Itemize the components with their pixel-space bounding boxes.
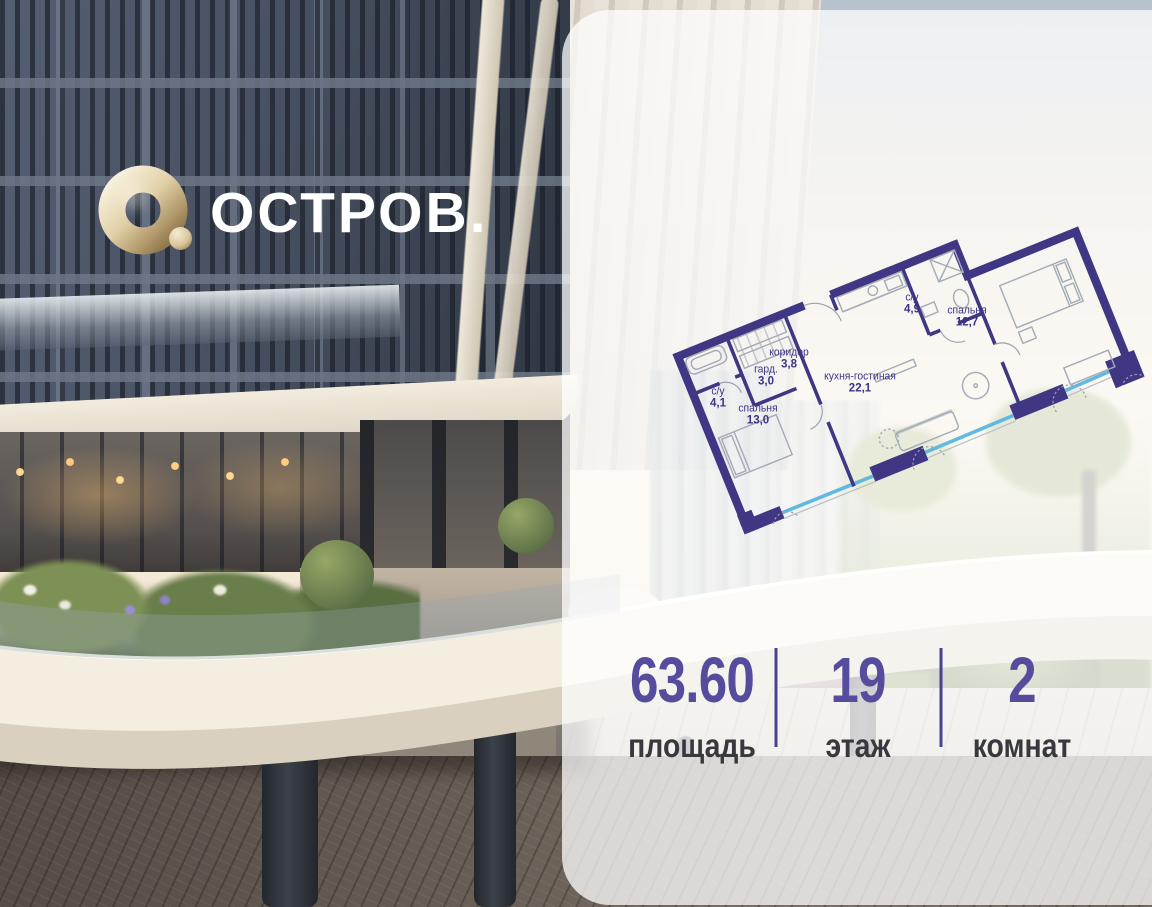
room-name: с/у — [904, 291, 919, 303]
promo-card: ОСТРОВ. — [0, 0, 1152, 907]
room-label: с/у 4,1 — [710, 385, 726, 410]
room-name: коридор — [769, 346, 808, 358]
stat-rooms: 2 комнат — [965, 648, 1080, 762]
pillar — [474, 700, 516, 907]
stat-area-value: 63.60 — [630, 648, 754, 712]
stat-floor-value: 19 — [828, 648, 889, 712]
room-name: с/у — [710, 385, 725, 397]
stat-floor-label: этаж — [825, 729, 890, 762]
room-label: гард. 3,0 — [753, 363, 778, 388]
stat-area-label: площадь — [625, 729, 758, 762]
room-name: гард. — [754, 363, 778, 375]
room-label: спальня 12,7 — [946, 304, 988, 329]
room-area: 12,7 — [946, 317, 988, 330]
room-name: спальня — [738, 402, 777, 414]
logo-period-dot — [169, 227, 192, 250]
stat-divider — [940, 648, 943, 747]
room-name: кухня-гостиная — [824, 370, 896, 382]
room-area: 22,1 — [822, 383, 898, 396]
room-label: кухня-гостиная 22,1 — [822, 370, 898, 395]
pillar — [262, 732, 318, 907]
room-area: 13,0 — [737, 415, 779, 428]
stat-floor: 19 этаж — [820, 648, 896, 762]
brand-title: ОСТРОВ. — [210, 185, 489, 242]
room-area: 3,0 — [753, 376, 778, 389]
room-label: с/у 4,9 — [904, 291, 920, 316]
stat-rooms-label: комнат — [973, 729, 1072, 762]
stat-divider — [775, 648, 778, 747]
room-label: спальня 13,0 — [737, 402, 779, 427]
room-name: спальня — [947, 304, 986, 316]
stat-area: 63.60 площадь — [614, 648, 769, 762]
round-bush — [300, 540, 374, 610]
room-area: 4,9 — [904, 304, 920, 317]
room-area: 4,1 — [710, 398, 726, 411]
stat-rooms-value: 2 — [976, 648, 1068, 712]
round-bush — [498, 498, 554, 554]
